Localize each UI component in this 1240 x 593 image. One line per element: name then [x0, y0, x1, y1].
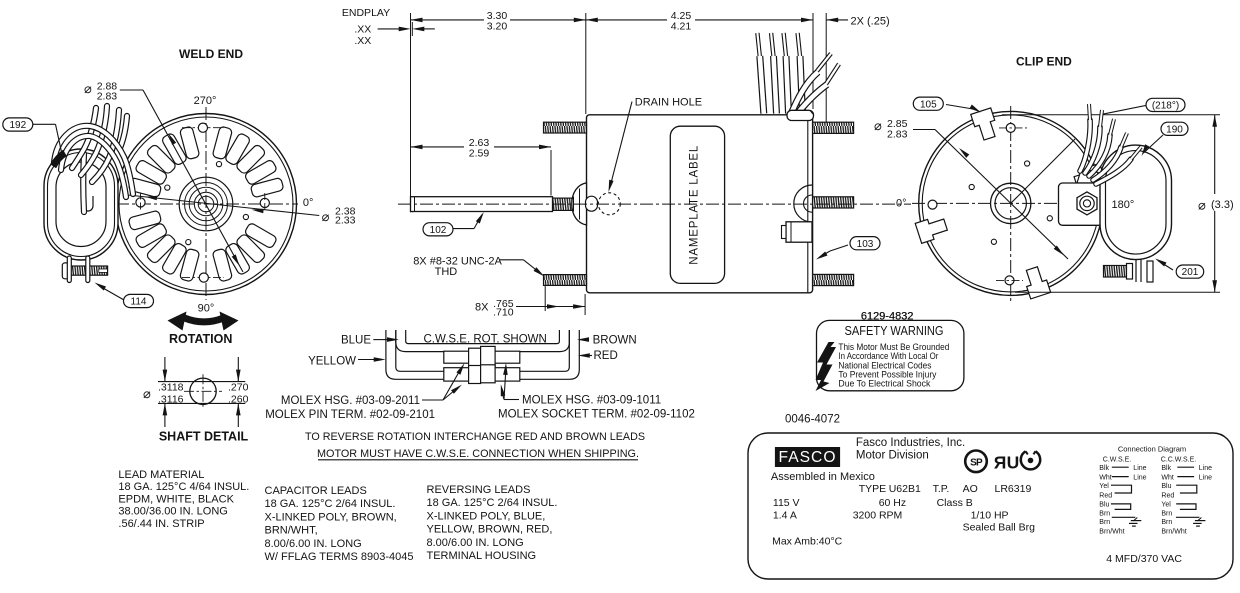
svg-text:18 GA. 125°C 4/64 INSUL.: 18 GA. 125°C 4/64 INSUL.: [118, 481, 249, 493]
svg-text:MOLEX SOCKET TERM. #02-09-1102: MOLEX SOCKET TERM. #02-09-1102: [498, 409, 695, 421]
svg-text:Brn: Brn: [1161, 519, 1172, 526]
svg-text:6129-4832: 6129-4832: [861, 311, 914, 323]
svg-text:Motor Division: Motor Division: [856, 450, 929, 462]
svg-text:MOTOR MUST HAVE C.W.S.E. CONNE: MOTOR MUST HAVE C.W.S.E. CONNECTION WHEN…: [317, 448, 639, 460]
svg-text:X-LINKED POLY, BROWN,: X-LINKED POLY, BROWN,: [265, 511, 397, 523]
svg-text:TERMINAL HOUSING: TERMINAL HOUSING: [427, 550, 537, 562]
svg-text:2.83: 2.83: [887, 128, 908, 140]
svg-text:Blk: Blk: [1099, 465, 1109, 472]
svg-text:8X #8-32 UNC-2A: 8X #8-32 UNC-2A: [413, 256, 502, 268]
svg-text:2.59: 2.59: [469, 148, 490, 160]
svg-text:.XX: .XX: [354, 24, 371, 36]
svg-text:AO: AO: [963, 483, 978, 495]
svg-text:WELD END: WELD END: [179, 47, 243, 61]
svg-text:Brn: Brn: [1099, 519, 1110, 526]
svg-text:⌀: ⌀: [84, 81, 92, 96]
svg-text:114: 114: [131, 297, 147, 308]
svg-text:105: 105: [920, 99, 937, 110]
svg-text:2.83: 2.83: [97, 90, 118, 102]
svg-text:TO REVERSE ROTATION INTERCHANG: TO REVERSE ROTATION INTERCHANGE RED AND …: [305, 431, 645, 443]
svg-text:R: R: [993, 453, 1006, 473]
svg-text:Blu: Blu: [1099, 502, 1109, 509]
svg-text:38.00/36.00 IN. LONG: 38.00/36.00 IN. LONG: [118, 506, 227, 518]
svg-text:Max Amb:40°C: Max Amb:40°C: [772, 536, 843, 548]
svg-text:1/10 HP: 1/10 HP: [971, 510, 1009, 522]
svg-text:.3116: .3116: [158, 394, 184, 406]
svg-text:.3118: .3118: [158, 382, 184, 394]
svg-text:18 GA. 125°C 2/64 INSUL.: 18 GA. 125°C 2/64 INSUL.: [427, 497, 558, 509]
svg-text:Brn/Wht: Brn/Wht: [1161, 528, 1186, 535]
svg-text:CAPACITOR LEADS: CAPACITOR LEADS: [265, 485, 367, 497]
svg-text:Blk: Blk: [1161, 465, 1171, 472]
svg-text:0046-4072: 0046-4072: [785, 414, 840, 426]
svg-text:Sealed Ball Brg: Sealed Ball Brg: [963, 522, 1036, 534]
svg-text:RED: RED: [594, 350, 618, 362]
svg-text:90°: 90°: [198, 303, 215, 315]
svg-text:BROWN: BROWN: [593, 335, 637, 347]
svg-text:SAFETY WARNING: SAFETY WARNING: [845, 323, 944, 338]
svg-text:EPDM, WHITE, BLACK: EPDM, WHITE, BLACK: [118, 493, 234, 505]
svg-text:Yel: Yel: [1099, 483, 1109, 490]
svg-text:ENDPLAY: ENDPLAY: [342, 7, 390, 19]
svg-text:Wht: Wht: [1161, 475, 1174, 482]
svg-text:T.P.: T.P.: [933, 483, 950, 495]
svg-text:YELLOW: YELLOW: [308, 356, 356, 368]
svg-text:Yel: Yel: [1161, 502, 1171, 509]
svg-text:LEAD MATERIAL: LEAD MATERIAL: [118, 469, 204, 481]
svg-text:(3.3): (3.3): [1211, 199, 1234, 211]
svg-text:SHAFT DETAIL: SHAFT DETAIL: [159, 430, 249, 444]
svg-text:270°: 270°: [194, 95, 217, 107]
svg-text:1.4 A: 1.4 A: [773, 510, 797, 522]
svg-text:0°: 0°: [303, 197, 314, 209]
svg-text:Brn/Wht: Brn/Wht: [1099, 528, 1124, 535]
svg-text:⌀: ⌀: [143, 386, 151, 401]
svg-text:⌀: ⌀: [1198, 198, 1206, 213]
svg-text:MOLEX HSG. #03-09-2011: MOLEX HSG. #03-09-2011: [281, 395, 420, 407]
svg-text:0°: 0°: [896, 198, 907, 210]
svg-text:Fasco Industries, Inc.: Fasco Industries, Inc.: [856, 437, 965, 449]
svg-text:Line: Line: [1199, 465, 1212, 472]
svg-text:Red: Red: [1099, 492, 1112, 499]
svg-text:2.33: 2.33: [335, 215, 356, 227]
svg-text:U62B1: U62B1: [889, 483, 921, 495]
svg-text:.XX: .XX: [354, 35, 371, 47]
svg-text:YELLOW, BROWN, RED,: YELLOW, BROWN, RED,: [427, 524, 553, 536]
svg-text:103: 103: [857, 239, 874, 250]
svg-text:8.00/6.00 IN. LONG: 8.00/6.00 IN. LONG: [427, 537, 524, 549]
svg-text:W/ FFLAG TERMS 8903-4045: W/ FFLAG TERMS 8903-4045: [265, 551, 414, 563]
svg-text:C.C.W.S.E.: C.C.W.S.E.: [1161, 456, 1196, 463]
svg-text:Wht: Wht: [1099, 475, 1112, 482]
svg-text:SP: SP: [970, 458, 983, 469]
svg-text:4 MFD/370 VAC: 4 MFD/370 VAC: [1106, 553, 1182, 565]
svg-text:60 Hz: 60 Hz: [879, 497, 906, 509]
svg-text:THD: THD: [435, 266, 458, 278]
svg-text:⌀: ⌀: [322, 209, 330, 224]
svg-text:8X: 8X: [475, 302, 489, 314]
svg-text:LR6319: LR6319: [995, 483, 1032, 495]
svg-text:115 V: 115 V: [773, 497, 800, 509]
svg-text:Due To Electrical Shock: Due To Electrical Shock: [838, 379, 930, 389]
svg-text:.270: .270: [228, 382, 249, 394]
svg-text:3.20: 3.20: [487, 21, 508, 33]
svg-text:MOLEX HSG. #03-09-1011: MOLEX HSG. #03-09-1011: [522, 395, 661, 407]
svg-text:.56/.44 IN. STRIP: .56/.44 IN. STRIP: [118, 518, 204, 530]
svg-text:102: 102: [430, 225, 447, 236]
svg-text:Brn: Brn: [1099, 510, 1110, 517]
svg-text:NAMEPLATE LABEL: NAMEPLATE LABEL: [689, 145, 701, 265]
svg-text:C.W.S.E.: C.W.S.E.: [1103, 456, 1131, 463]
svg-text:201: 201: [1182, 267, 1199, 278]
svg-text:3200 RPM: 3200 RPM: [853, 510, 903, 522]
svg-text:Brn: Brn: [1161, 510, 1172, 517]
svg-text:180°: 180°: [1112, 199, 1135, 211]
svg-text:2X (.25): 2X (.25): [851, 16, 890, 28]
svg-text:Assembled in Mexico: Assembled in Mexico: [771, 471, 875, 483]
svg-text:Red: Red: [1161, 492, 1174, 499]
svg-text:Line: Line: [1133, 475, 1146, 482]
svg-text:C.W.S.E. ROT. SHOWN: C.W.S.E. ROT. SHOWN: [424, 334, 547, 346]
svg-text:Line: Line: [1133, 465, 1146, 472]
svg-text:FASCO: FASCO: [779, 449, 837, 466]
svg-text:CLIP END: CLIP END: [1016, 55, 1072, 69]
svg-text:(218°): (218°): [1152, 101, 1179, 112]
svg-text:18 GA. 125°C 2/64 INSUL.: 18 GA. 125°C 2/64 INSUL.: [265, 498, 396, 510]
svg-text:U: U: [1007, 453, 1020, 473]
svg-text:190: 190: [1166, 124, 1183, 135]
svg-text:BLUE: BLUE: [341, 335, 371, 347]
svg-text:BRN/WHT,: BRN/WHT,: [265, 525, 318, 537]
svg-text:192: 192: [9, 120, 26, 131]
svg-text:ROTATION: ROTATION: [169, 332, 232, 346]
svg-text:REVERSING LEADS: REVERSING LEADS: [427, 484, 531, 496]
svg-text:Class B: Class B: [937, 497, 973, 509]
svg-text:8.00/6.00 IN. LONG: 8.00/6.00 IN. LONG: [265, 538, 362, 550]
svg-text:Blu: Blu: [1161, 483, 1171, 490]
svg-text:.260: .260: [228, 394, 249, 406]
svg-text:DRAIN HOLE: DRAIN HOLE: [635, 96, 702, 108]
svg-text:⌀: ⌀: [874, 118, 882, 133]
svg-text:.710: .710: [493, 306, 514, 318]
svg-text:Line: Line: [1199, 475, 1212, 482]
svg-text:4.21: 4.21: [671, 21, 692, 33]
svg-text:Connection Diagram: Connection Diagram: [1118, 445, 1186, 454]
svg-text:MOLEX PIN TERM. #02-09-2101: MOLEX PIN TERM. #02-09-2101: [265, 409, 435, 421]
svg-text:TYPE: TYPE: [859, 483, 886, 495]
svg-text:X-LINKED POLY, BLUE,: X-LINKED POLY, BLUE,: [427, 510, 546, 522]
